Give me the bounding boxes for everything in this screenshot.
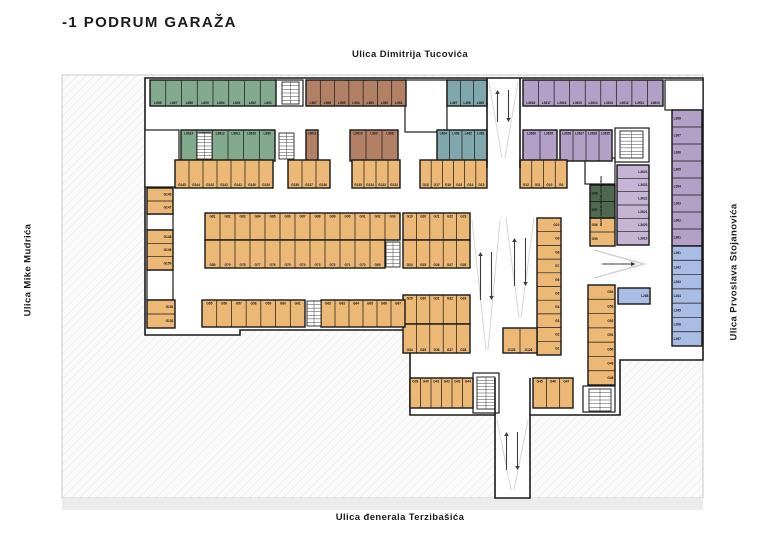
stall-label: G88	[314, 214, 320, 218]
stall-label: G13	[478, 183, 484, 187]
stall-label: G1	[555, 346, 559, 350]
utility-room	[147, 270, 173, 300]
stall-label: L3615	[573, 101, 582, 105]
utility-room	[665, 80, 703, 110]
stall-label: G74	[299, 263, 305, 267]
stall-label: G126	[525, 348, 533, 352]
stall-label: G84	[254, 214, 260, 218]
stall-label: G39	[412, 379, 418, 383]
stall-label: L3614	[588, 101, 597, 105]
stall-label: L3625	[601, 131, 610, 135]
stall-label: G18	[423, 183, 429, 187]
stall-label: G47	[563, 379, 569, 383]
stall-label: G31	[433, 296, 439, 300]
stall-label: G55	[206, 301, 212, 305]
stall-label: G32	[447, 296, 453, 300]
stall-label: G146	[164, 193, 172, 197]
stall-label: G78	[239, 263, 245, 267]
stall-label: G149	[164, 248, 172, 252]
stall-label: L3613	[604, 101, 613, 105]
stall-label: G56	[221, 301, 227, 305]
stall-label: G10	[546, 183, 552, 187]
stall-label: G29	[407, 296, 413, 300]
stall-label: L361	[674, 236, 681, 240]
stall-label: L869	[264, 131, 271, 135]
stall-label: L265	[674, 308, 681, 312]
stall-label: G148	[164, 235, 172, 239]
stall-label: L865	[201, 101, 208, 105]
stall-label: G40	[423, 379, 429, 383]
stall-label: G138	[291, 183, 299, 187]
stall-label: G77	[254, 263, 260, 267]
page: -1 PODRUM GARAŽA Ulica Dimitrija Tucović…	[0, 0, 768, 542]
stall-label: G143	[206, 183, 214, 187]
stall-label: G23	[460, 214, 466, 218]
stall-label: L464	[440, 131, 447, 135]
stall-label: G66	[381, 301, 387, 305]
stall-label: L8614	[184, 131, 193, 135]
stall-label: L569	[370, 131, 377, 135]
stall-label: L563	[367, 101, 374, 105]
stairs-icon	[282, 82, 299, 104]
stall-label: G10	[553, 223, 559, 227]
stall-label: G50	[607, 347, 613, 351]
stall-label: G9	[555, 237, 559, 241]
stall-label: G65	[367, 301, 373, 305]
stall-label: L3624	[638, 170, 647, 174]
stall-label: G16	[445, 183, 451, 187]
stall-label: L3611	[635, 101, 644, 105]
stall-label: G5	[555, 291, 559, 295]
stall-label: G58	[250, 301, 256, 305]
stall-label: G20	[420, 214, 426, 218]
floor-plan-svg: L868L867L866L865L864L863L862L861L8614L86…	[0, 0, 768, 542]
stall-label: G22	[447, 214, 453, 218]
stall-label: L3627	[575, 131, 584, 135]
utility-room	[147, 214, 173, 230]
stall-label: G91	[359, 214, 365, 218]
stall-label: L868	[154, 101, 161, 105]
stall-label: L362	[674, 219, 681, 223]
stall-label: G43	[454, 379, 460, 383]
stall-label: L368	[674, 117, 681, 121]
stall-label: G150	[164, 261, 172, 265]
stall-label: G140	[248, 183, 256, 187]
stall-label: G82	[224, 214, 230, 218]
stall-label: G83	[239, 214, 245, 218]
stall-label: L3622	[638, 196, 647, 200]
stall-label: G58	[592, 191, 598, 195]
stall-label: G17	[434, 183, 440, 187]
stall-label: G62	[325, 301, 331, 305]
stairs-icon	[477, 377, 495, 409]
stall-label: G87	[299, 214, 305, 218]
stall-label: G81	[209, 214, 215, 218]
stall-label: L867	[170, 101, 177, 105]
stall-label: G55	[592, 237, 598, 241]
stall-label: G28	[460, 263, 466, 267]
stall-label: G46	[550, 379, 556, 383]
stall-label: L565	[338, 101, 345, 105]
stall-label: L8611	[231, 131, 240, 135]
stall-label: G15	[456, 183, 462, 187]
stall-label: G60	[280, 301, 286, 305]
stall-label: L364	[674, 185, 681, 189]
stall-label: G64	[353, 301, 359, 305]
stall-label: G61	[295, 301, 301, 305]
stall-label: G73	[314, 263, 320, 267]
stall-label: L465	[477, 101, 484, 105]
stall-label: L466	[463, 101, 470, 105]
stall-label: G136	[319, 183, 327, 187]
stall-label: G45	[537, 379, 543, 383]
stall-label: G52	[607, 319, 613, 323]
stall-label: L562	[381, 101, 388, 105]
stall-label: G21	[433, 214, 439, 218]
stall-label: L567	[310, 101, 317, 105]
stall-label: L863	[233, 101, 240, 105]
stall-label: G9	[559, 183, 563, 187]
stall-label: L3617	[542, 101, 551, 105]
stairs-icon	[197, 133, 212, 159]
utility-room	[145, 130, 179, 187]
stall-label: G86	[284, 214, 290, 218]
stall-label: G27	[447, 263, 453, 267]
stall-label: L5611	[308, 131, 317, 135]
stall-label: L861	[264, 101, 271, 105]
stall-label: G93	[389, 214, 395, 218]
stall-label: L365	[674, 168, 681, 172]
stall-label: G144	[192, 183, 200, 187]
stall-label: L566	[324, 101, 331, 105]
stall-label: G92	[374, 214, 380, 218]
stall-label: G48	[607, 376, 613, 380]
stall-label: G14	[467, 183, 473, 187]
stall-label: G12	[523, 183, 529, 187]
stall-label: L3612	[620, 101, 629, 105]
stall-label: L267	[674, 337, 681, 341]
stall-label: G141	[234, 183, 242, 187]
stall-label: G57	[236, 301, 242, 305]
stall-label: L862	[249, 101, 256, 105]
stall-label: L3626	[588, 131, 597, 135]
stall-label: G142	[220, 183, 228, 187]
stall-label: G72	[329, 263, 335, 267]
stall-label: G70	[359, 263, 365, 267]
stall-label: L367	[674, 134, 681, 138]
stall-label: L3623	[638, 183, 647, 187]
stall-label: G69	[374, 263, 380, 267]
stall-label: G57	[592, 208, 598, 212]
stairs-icon	[589, 389, 611, 411]
stall-label: G2	[555, 333, 559, 337]
stall-label: L8612	[216, 131, 225, 135]
stall-label: G152	[166, 319, 174, 323]
stall-label: G41	[433, 379, 439, 383]
stall-label: L363	[674, 202, 681, 206]
stall-label: L266	[674, 323, 681, 327]
stall-label: L467	[450, 101, 457, 105]
stall-label: G132	[390, 183, 398, 187]
stall-label: G35	[420, 348, 426, 352]
stall-label: G151	[166, 305, 174, 309]
stall-label: G24	[407, 263, 413, 267]
stairs-icon	[307, 301, 321, 326]
stall-label: L3628	[562, 131, 571, 135]
stairs-icon	[620, 131, 643, 158]
stall-label: L366	[674, 151, 681, 155]
stall-label: L3620	[638, 223, 647, 227]
stall-label: L3616	[557, 101, 566, 105]
stall-label: G7	[555, 264, 559, 268]
stall-label: G59	[265, 301, 271, 305]
stall-label: G8	[555, 250, 559, 254]
stall-label: L268	[641, 294, 648, 298]
stall-label: G134	[366, 183, 374, 187]
stall-label: G42	[444, 379, 450, 383]
stall-label: G36	[433, 348, 439, 352]
stall-label: L263	[674, 280, 681, 284]
stall-label: G139	[262, 183, 270, 187]
stall-label: G51	[607, 333, 613, 337]
stall-label: G125	[508, 348, 516, 352]
stall-label: L461	[477, 131, 484, 135]
stall-label: G133	[378, 183, 386, 187]
stall-label: L564	[352, 101, 359, 105]
stall-label: L3630	[527, 131, 536, 135]
stall-label: G85	[269, 214, 275, 218]
stall-label: L866	[186, 101, 193, 105]
stall-label: G71	[344, 263, 350, 267]
stall-label: G37	[447, 348, 453, 352]
stall-label: L561	[395, 101, 402, 105]
stall-label: L463	[452, 131, 459, 135]
stall-label: G145	[178, 183, 186, 187]
stall-label: G54	[607, 290, 613, 294]
stall-label: G147	[164, 206, 172, 210]
stall-label: L3619	[638, 236, 647, 240]
stall-label: G90	[344, 214, 350, 218]
stall-label: G63	[339, 301, 345, 305]
stall-label: L864	[217, 101, 224, 105]
stall-label: G4	[555, 305, 559, 309]
stall-label: G75	[284, 263, 290, 267]
stall-label: G30	[420, 296, 426, 300]
utility-room	[405, 80, 447, 132]
stall-label: G49	[607, 362, 613, 366]
stall-label: G44	[465, 379, 471, 383]
stall-label: L5610	[353, 131, 362, 135]
stall-label: G89	[329, 214, 335, 218]
stall-label: G80	[209, 263, 215, 267]
stall-label: L3629	[544, 131, 553, 135]
stall-label: G38	[460, 348, 466, 352]
stall-label: L8610	[247, 131, 256, 135]
stall-label: G53	[607, 305, 613, 309]
stall-label: L568	[386, 131, 393, 135]
stall-label: G26	[433, 263, 439, 267]
stall-label: L3618	[526, 101, 535, 105]
stall-label: L3610	[651, 101, 660, 105]
stall-label: L262	[674, 266, 681, 270]
stall-label: G11	[535, 183, 541, 187]
stall-label: G56	[592, 223, 598, 227]
stall-label: G3	[555, 319, 559, 323]
street-band	[62, 498, 703, 510]
stall-label: G34	[407, 348, 413, 352]
stall-label: L264	[674, 294, 681, 298]
stall-label: G33	[460, 296, 466, 300]
stall-label: G137	[305, 183, 313, 187]
stall-label: L261	[674, 251, 681, 255]
stall-label: G67	[395, 301, 401, 305]
stall-label: L462	[465, 131, 472, 135]
stall-label: L3621	[638, 210, 647, 214]
stall-label: G76	[269, 263, 275, 267]
stall-label: G135	[354, 183, 362, 187]
stall-label: G6	[555, 278, 559, 282]
stall-label: G79	[224, 263, 230, 267]
stairs-icon	[279, 133, 294, 159]
stall-label: G25	[420, 263, 426, 267]
stall-label: G19	[407, 214, 413, 218]
stairs-icon	[386, 242, 400, 267]
